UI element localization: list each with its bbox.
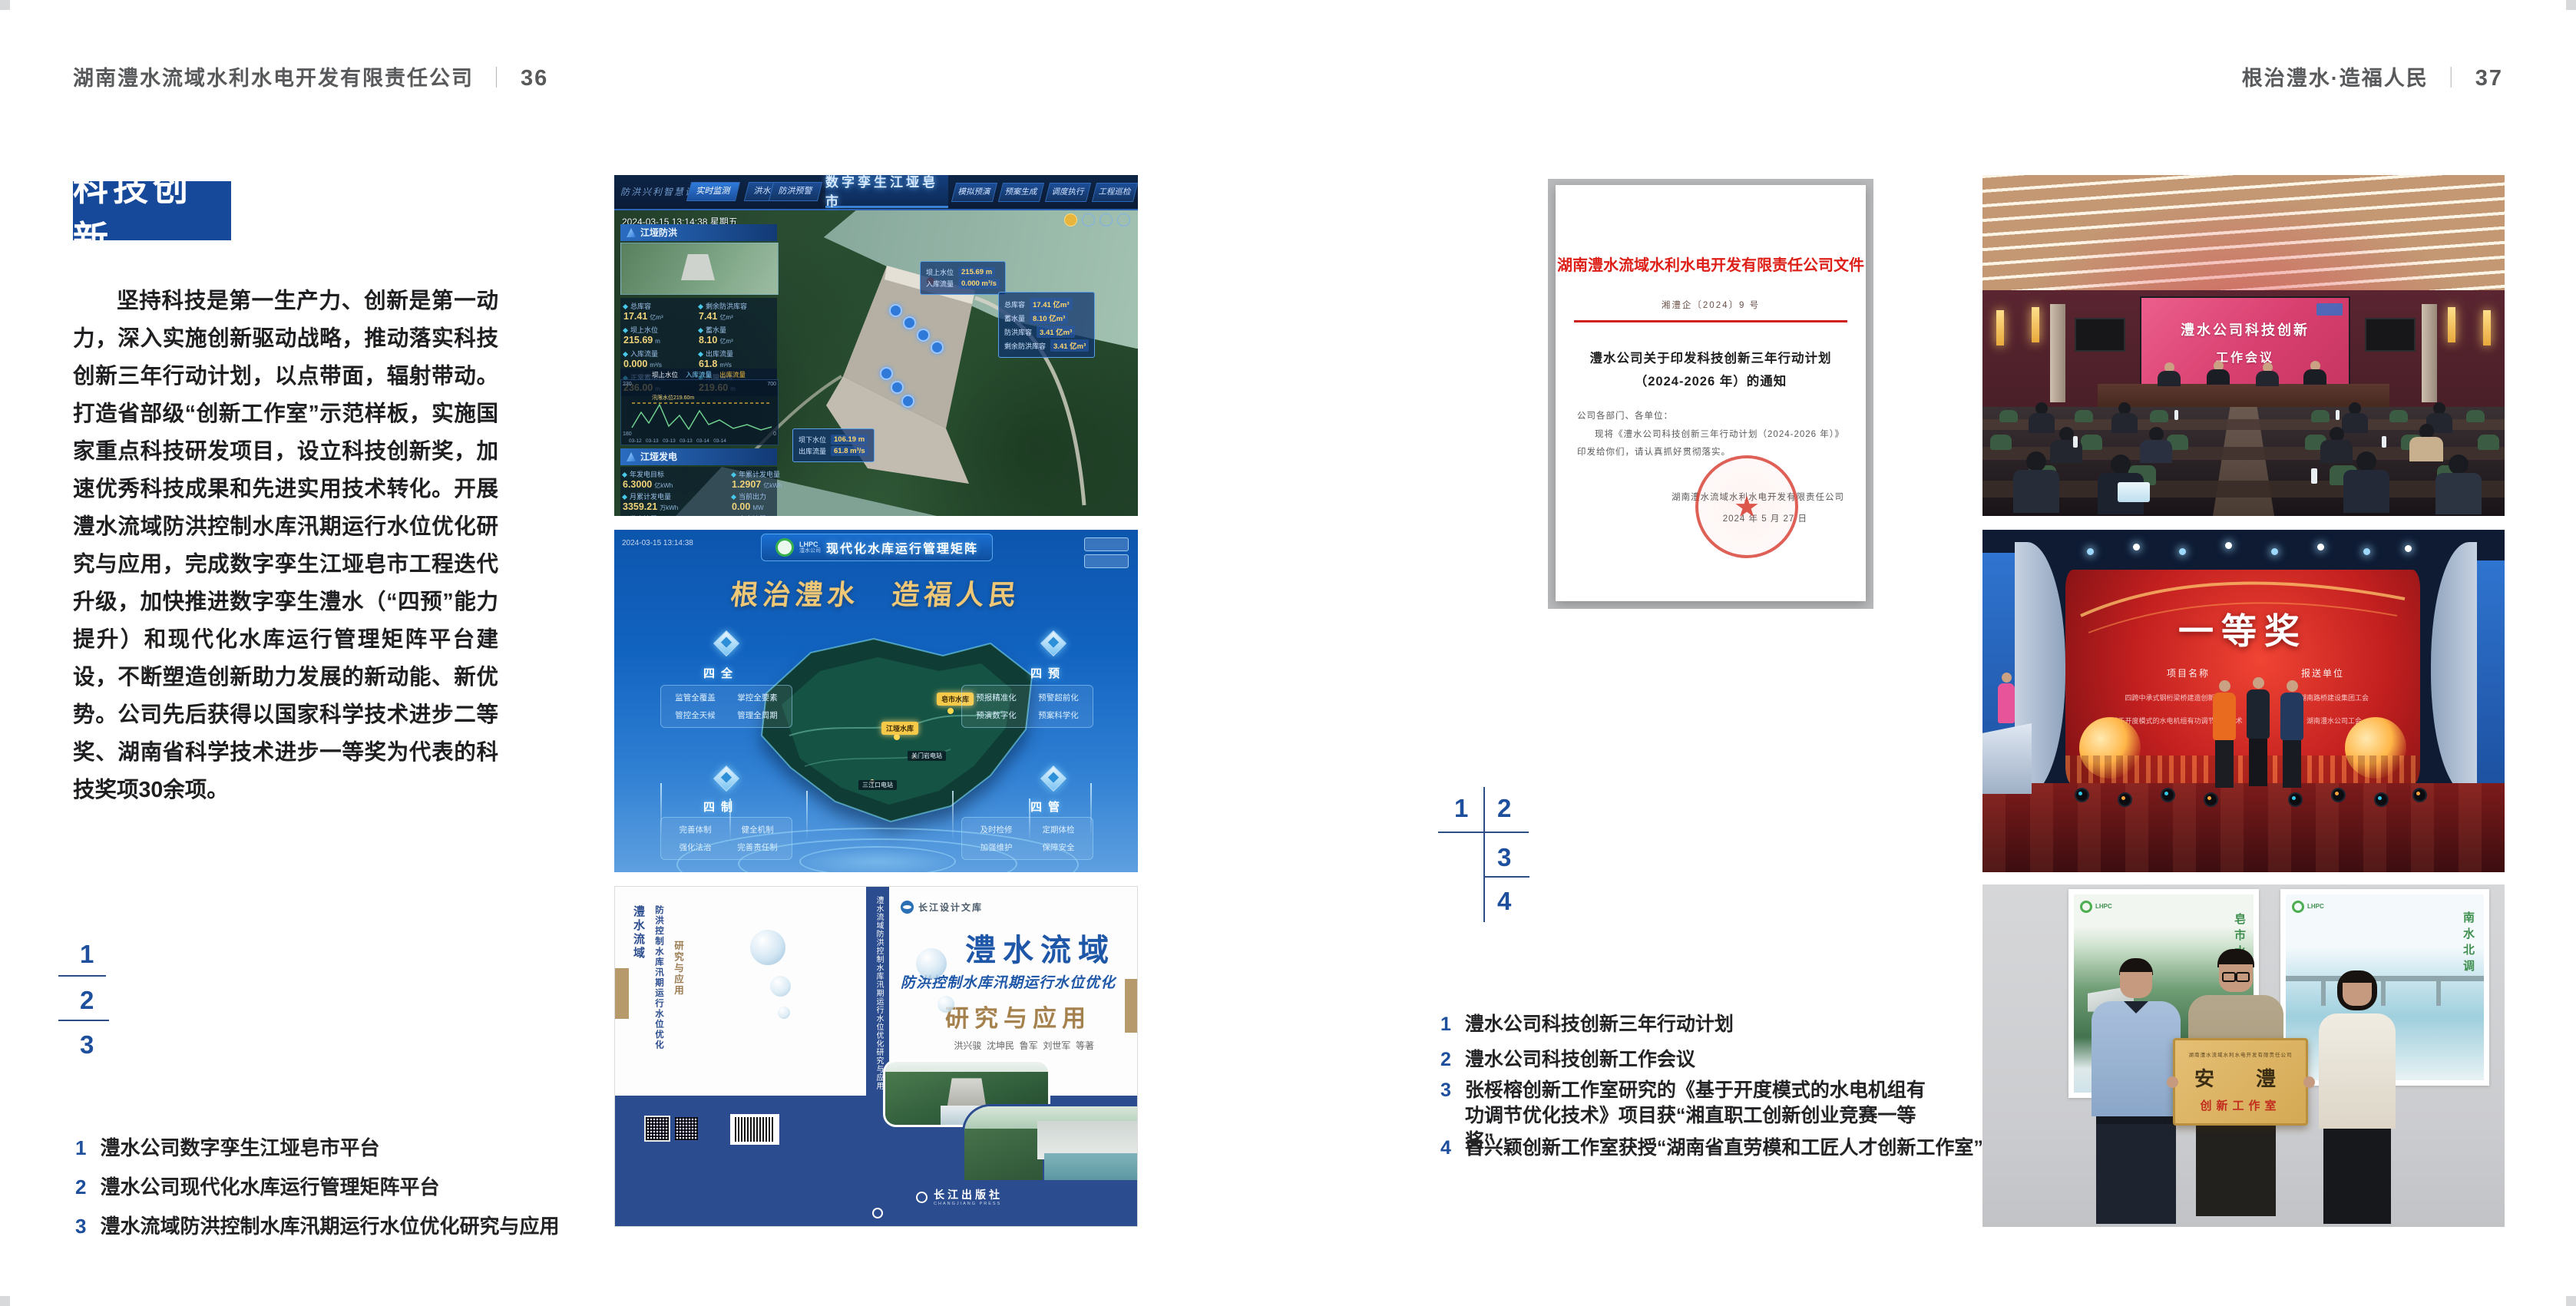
front-accent-block bbox=[1125, 979, 1137, 1033]
stat-value: 17.41 bbox=[623, 311, 647, 322]
tooltip-upstream: 坝上水位215.69 m 入库流量0.000 m³/s bbox=[920, 261, 1006, 295]
tooltip-label: 入库流量 bbox=[926, 279, 954, 289]
water-bottle bbox=[2311, 468, 2317, 484]
caption-text: 澧水公司科技创新工作会议 bbox=[1465, 1047, 1695, 1073]
screen-logo bbox=[2316, 303, 2343, 316]
book-spine: 澧水流域防洪控制水库汛期运行水位优化研究与应用 bbox=[866, 887, 889, 1226]
spotlight-icon bbox=[2133, 544, 2140, 551]
tooltip-label: 剩余防洪库容 bbox=[1004, 341, 1046, 351]
company-logo-icon bbox=[2080, 901, 2092, 913]
section-title-badge: 科技创新 bbox=[73, 181, 231, 240]
figure-marker: 2 bbox=[1497, 794, 1511, 823]
awardee-orange bbox=[2213, 680, 2236, 788]
crop-mark bbox=[0, 1296, 10, 1306]
chair-back bbox=[2311, 410, 2330, 422]
brand-slogan: 根治澧水 造福人民 bbox=[614, 573, 1138, 613]
figure-marker: 3 bbox=[80, 1030, 94, 1060]
tab-simulation: 模拟预演 bbox=[951, 183, 997, 202]
document-letterhead: 湖南澧水流域水利水电开发有限责任公司文件 bbox=[1556, 253, 1866, 275]
water-droplet bbox=[778, 1007, 790, 1019]
stat-unit: m³/s bbox=[650, 362, 662, 369]
figure-award-stage-photo: 一等奖 项目名称 报送单位 四跨中承式钢桁梁桥建造创新技术 基于开度模式的水电机… bbox=[1982, 530, 2505, 872]
award-title: 一等奖 bbox=[2065, 603, 2420, 654]
screen-title-line1: 澧水公司科技创新 bbox=[2181, 319, 2310, 339]
document-salutation: 公司各部门、各单位： bbox=[1577, 409, 1673, 422]
poster-bridge-pier bbox=[2436, 980, 2441, 1006]
innovation-plaque: 湖南澧水流域水利水电开发有限责任公司 安 澧 创新工作室 bbox=[2173, 1038, 2308, 1126]
tab-plan-generation: 预案生成 bbox=[998, 183, 1044, 202]
panel-item: 预警超前化 bbox=[1029, 692, 1088, 703]
water-bottle bbox=[2336, 410, 2340, 420]
y-axis-max: 230 bbox=[623, 382, 632, 387]
basin-map bbox=[720, 620, 1043, 851]
station-marker: 三江口电站 bbox=[858, 780, 897, 790]
project-item: 四跨中承式钢桁梁桥建造创新技术 bbox=[2088, 693, 2265, 703]
barcode bbox=[730, 1114, 779, 1145]
legend-item: 出库流量 bbox=[719, 370, 746, 379]
caption-number: 1 bbox=[1440, 1012, 1451, 1037]
water-droplet bbox=[937, 996, 954, 1013]
skyline-silhouette bbox=[2065, 755, 2420, 785]
caption-number: 4 bbox=[1440, 1136, 1451, 1161]
poster-logo-text: LHPC bbox=[2095, 903, 2112, 910]
ceiling bbox=[1982, 175, 2505, 306]
spotlight-icon bbox=[2271, 548, 2278, 555]
header-divider: ｜ bbox=[2429, 67, 2475, 90]
stat-unit: MW bbox=[752, 504, 763, 511]
water-droplet bbox=[770, 976, 791, 997]
tooltip-value: 106.19 m bbox=[831, 435, 868, 445]
qr-code bbox=[646, 1117, 669, 1140]
water-droplet bbox=[750, 930, 785, 965]
series-name: 长江设计文库 bbox=[918, 901, 983, 914]
spotlight-icon bbox=[2087, 548, 2094, 555]
tooltip-capacity: 总库容17.41 亿m³ 蓄水量8.10 亿m³ 防洪库容3.41 亿m³ 剩余… bbox=[998, 292, 1095, 358]
spotlight-icon bbox=[2405, 545, 2412, 552]
water-bottle bbox=[2073, 436, 2078, 448]
letterhead-rule bbox=[1574, 320, 1847, 322]
document-sheet: 湖南澧水流域水利水电开发有限责任公司文件 湘澧企〔2024〕9 号 澧水公司关于… bbox=[1556, 185, 1866, 601]
stage-light-fixture bbox=[2075, 788, 2089, 802]
body-paragraph: 坚持科技是第一生产力、创新是第一动力，深入实施创新驱动战略，推动落实科技创新三年… bbox=[73, 283, 498, 809]
tooltip-label: 坝上水位 bbox=[926, 267, 954, 277]
stat-unit: 万kWh bbox=[660, 504, 678, 511]
stat-unit: 亿m³ bbox=[719, 338, 732, 345]
wall-lamp bbox=[2032, 307, 2039, 342]
panel-item: 预案科学化 bbox=[1029, 709, 1088, 721]
tooltip-value: 0.000 m³/s bbox=[958, 279, 1000, 289]
person-right bbox=[2319, 970, 2396, 1224]
logo-abbr: LHPC bbox=[799, 541, 821, 548]
side-screen-right bbox=[2474, 560, 2505, 798]
water-droplet bbox=[916, 948, 947, 979]
hand bbox=[2303, 1076, 2315, 1088]
page-header-left: 湖南澧水流域水利水电开发有限责任公司｜36 bbox=[73, 61, 548, 91]
desk-row bbox=[1982, 481, 2505, 498]
presenter-suit bbox=[2247, 677, 2270, 786]
wall-lamp bbox=[2483, 310, 2491, 346]
wall-pillar bbox=[2050, 304, 2065, 402]
back-title-block: 澧水流域 防洪控制水库汛期运行水位优化 研究与应用 bbox=[630, 905, 686, 1050]
y2-axis-max: 700 bbox=[767, 382, 776, 387]
figure-meeting-photo: 澧水公司科技创新 工作会议 bbox=[1982, 175, 2505, 516]
matrix-title: 现代化水库运行管理矩阵 bbox=[826, 538, 978, 557]
caption-item: 1澧水公司数字孪生江垭皂市平台 bbox=[75, 1135, 379, 1161]
plaque-label: 创新工作室 bbox=[2200, 1097, 2280, 1113]
figure-book-cover: 澧水流域 防洪控制水库汛期运行水位优化 研究与应用 澧水流域防洪控制水库汛期运行… bbox=[614, 886, 1138, 1227]
host-figure bbox=[1998, 673, 2015, 723]
settings-icon bbox=[1117, 213, 1130, 226]
poster-logo-text: LHPC bbox=[2307, 903, 2324, 910]
light-pillar bbox=[660, 783, 662, 837]
panel-header-flood: 江垭防洪 bbox=[620, 224, 777, 241]
marker-divider bbox=[58, 975, 106, 977]
book-spread: 湖南澧水流域水利水电开发有限责任公司｜36 根治澧水·造福人民｜37 科技创新 … bbox=[0, 0, 2576, 1306]
host-podium bbox=[1982, 723, 2032, 794]
book-title2: 研究与应用 bbox=[945, 999, 1091, 1033]
hud-icon-cluster bbox=[1060, 213, 1130, 230]
y-axis-min: 180 bbox=[623, 431, 632, 437]
company-logo-icon bbox=[775, 538, 794, 557]
wall-pillar bbox=[2422, 304, 2437, 402]
stat-label: 月累计发电量 bbox=[623, 491, 698, 501]
stage-light-fixture bbox=[2161, 788, 2175, 802]
locate-icon bbox=[1100, 213, 1113, 226]
chart-lines bbox=[621, 380, 778, 445]
wall-lamp bbox=[2448, 307, 2455, 342]
flag-icon bbox=[1040, 630, 1066, 656]
stat-unit: 亿kWh bbox=[654, 482, 673, 489]
panel-items: 监管全覆盖掌控全要素 管控全天候管理全周期 bbox=[660, 685, 792, 728]
stat-value: 0.000 bbox=[623, 359, 647, 369]
light-pillar bbox=[806, 791, 808, 841]
page-header-right: 根治澧水·造福人民｜37 bbox=[2242, 61, 2503, 91]
tooltip-value: 3.41 亿m³ bbox=[1037, 326, 1075, 338]
platform-title: 数字孪生江垭皂市 bbox=[825, 175, 948, 208]
back-accent-block bbox=[615, 968, 629, 1019]
back-title: 澧水流域 bbox=[630, 905, 646, 1050]
panel-item: 预演数字化 bbox=[967, 709, 1026, 721]
company-name: 湖南澧水流域水利水电开发有限责任公司 bbox=[73, 67, 474, 90]
stat-value: 7.41 bbox=[699, 311, 717, 322]
chair-back bbox=[2466, 410, 2485, 422]
tooltip-label: 蓄水量 bbox=[1004, 313, 1025, 323]
chart-annotation: 汛限水位219.60m bbox=[652, 394, 694, 402]
figure-marker: 4 bbox=[1497, 887, 1511, 916]
matrix-header: LHPC 澧水公司 现代化水库运行管理矩阵 bbox=[761, 534, 993, 561]
tooltip-label: 坝下水位 bbox=[799, 435, 826, 445]
gate-marker-icon bbox=[931, 341, 944, 354]
awardee-navy bbox=[2280, 680, 2303, 788]
stat-unit: 亿m³ bbox=[719, 314, 732, 321]
tab-dispatch-execution: 调度执行 bbox=[1045, 183, 1091, 202]
stat-value: 6.3000 bbox=[623, 479, 652, 490]
stage-light-fixture bbox=[2204, 792, 2218, 807]
menu-button bbox=[1084, 554, 1129, 568]
gate-marker-icon bbox=[891, 381, 904, 394]
stat-unit: m³/s bbox=[719, 362, 732, 369]
column-header: 项目名称 bbox=[2119, 666, 2257, 679]
marker-divider bbox=[1483, 876, 1529, 878]
halo-ring bbox=[799, 846, 956, 872]
official-seal: ★ bbox=[1695, 455, 1798, 558]
caption-number: 3 bbox=[1440, 1078, 1451, 1103]
stage-light-fixture bbox=[2374, 792, 2389, 807]
tooltip-value: 215.69 m bbox=[958, 267, 995, 277]
logo-subtitle: 澧水公司 bbox=[799, 548, 821, 554]
y2-axis-min: 0 bbox=[773, 431, 776, 437]
reservoir-marker: 江垭水库 bbox=[881, 722, 918, 735]
figure-official-document: 湖南澧水流域水利水电开发有限责任公司文件 湘澧企〔2024〕9 号 澧水公司关于… bbox=[1548, 179, 1873, 609]
tooltip-value: 3.41 亿m³ bbox=[1050, 339, 1089, 352]
shield-icon bbox=[1040, 765, 1066, 792]
caption-text: 澧水公司现代化水库运行管理矩阵平台 bbox=[100, 1174, 439, 1200]
gate-marker-icon bbox=[917, 329, 930, 342]
stage-structure-right bbox=[2431, 542, 2477, 795]
chair-back bbox=[2478, 435, 2499, 450]
stat-value: 1.2907 bbox=[732, 479, 761, 490]
tooltip-downstream: 坝下水位106.19 m 出库流量61.8 m³/s bbox=[792, 428, 875, 462]
stat-unit: 亿kWh bbox=[763, 482, 782, 489]
station-marker: 关门岩电站 bbox=[908, 751, 946, 761]
caption-text: 澧水流域防洪控制水库汛期运行水位优化研究与应用 bbox=[100, 1213, 559, 1239]
gate-marker-icon bbox=[889, 304, 902, 317]
caption-number: 3 bbox=[75, 1213, 86, 1239]
tissue-box bbox=[2118, 482, 2150, 502]
light-pillar bbox=[1029, 798, 1030, 841]
crop-mark bbox=[2566, 0, 2576, 10]
chair-back bbox=[1999, 410, 2018, 422]
hand bbox=[2167, 1076, 2178, 1088]
figure-plaque-photo: LHPC 皂市水库 LHPC 南水北调 bbox=[1982, 884, 2505, 1227]
chair-back bbox=[2389, 410, 2408, 422]
figure-digital-twin-platform: 数字孪生江垭皂市 防洪兴利智慧调度 实时监测 洪水预报 防洪预警 模拟预演 预案… bbox=[614, 175, 1138, 516]
tab-project-inspection: 工程巡检 bbox=[1092, 183, 1138, 202]
book-authors: 洪兴骏 沈坤民 鲁军 刘世军 等著 bbox=[954, 1039, 1094, 1052]
stat-label: 蓄水量 bbox=[699, 325, 774, 335]
stage-light-fixture bbox=[2331, 788, 2346, 802]
poster-calligraphy: 南水北调 bbox=[2460, 911, 2476, 976]
panel-title: 四预 bbox=[1030, 665, 1066, 681]
back-subtitle: 防洪控制水库汛期运行水位优化 bbox=[653, 905, 665, 1050]
stat-label: 入库流量 bbox=[623, 349, 699, 359]
stage-light-fixture bbox=[2412, 788, 2427, 802]
stat-label: 坝上水位 bbox=[623, 325, 699, 335]
caption-text: 澧水公司科技创新三年行动计划 bbox=[1465, 1012, 1734, 1037]
stat-label: 剩余防洪库容 bbox=[699, 301, 774, 311]
wall-tv bbox=[2075, 318, 2125, 352]
chair-back bbox=[2150, 410, 2168, 422]
gate-marker-icon bbox=[880, 367, 893, 380]
stage-light-fixture bbox=[2118, 792, 2132, 807]
stat-value: 8.10 bbox=[699, 335, 717, 346]
chair-back bbox=[1990, 435, 2012, 450]
crop-mark bbox=[2566, 1296, 2576, 1306]
stat-label: 总库容 bbox=[623, 301, 699, 311]
stat-label: 发电流量 bbox=[623, 514, 698, 516]
level-chart: 230 180 700 0 汛限水位219.60m 03-12 03-13 03… bbox=[620, 379, 779, 445]
header-divider: ｜ bbox=[474, 67, 521, 90]
stage-light-fixture bbox=[2288, 792, 2303, 807]
crop-mark bbox=[0, 0, 10, 10]
tab-flood-warning: 防洪预警 bbox=[769, 182, 822, 201]
document-body: 现将《澧水公司科技创新三年行动计划（2024-2026 年）》印发给你们，请认真… bbox=[1577, 426, 1844, 461]
plaque-org-line: 湖南澧水流域水利水电开发有限责任公司 bbox=[2189, 1050, 2293, 1058]
figure-matrix-platform: LHPC 澧水公司 现代化水库运行管理矩阵 2024-03-15 13:14:3… bbox=[614, 530, 1138, 872]
panel-title: 四制 bbox=[703, 798, 739, 815]
powerhouse-photo bbox=[964, 1106, 1138, 1180]
tooltip-label: 防洪库容 bbox=[1004, 327, 1032, 337]
panel-item: 监管全覆盖 bbox=[666, 692, 725, 703]
layers-icon bbox=[1082, 213, 1095, 226]
caption-item: 2澧水公司现代化水库运行管理矩阵平台 bbox=[75, 1174, 439, 1200]
wall-lamp bbox=[1996, 310, 2004, 346]
x-axis-ticks: 03-12 03-13 03-13 03-13 03-14 03-14 bbox=[629, 438, 726, 444]
panel-items: 预报精准化预警超前化 预演数字化预案科学化 bbox=[961, 685, 1093, 728]
publisher-logo-icon bbox=[872, 1208, 883, 1218]
dam-thumbnail bbox=[620, 243, 779, 295]
caption-item: 1澧水公司科技创新三年行动计划 bbox=[1440, 1012, 1734, 1037]
slogan: 根治澧水·造福人民 bbox=[2242, 67, 2429, 90]
spotlight-icon bbox=[2363, 548, 2370, 555]
matrix-datetime: 2024-03-15 13:14:38 bbox=[622, 539, 693, 547]
caption-item: 4曾兴颖创新工作室获授“湖南省直劳模和工匠人才创新工作室” bbox=[1440, 1136, 1983, 1161]
stat-label: 年发电目标 bbox=[623, 469, 698, 479]
stat-label: 出库流量 bbox=[699, 349, 774, 359]
publisher-latin: CHANGJIANG PRESS bbox=[934, 1202, 1003, 1207]
figure-marker: 1 bbox=[80, 940, 94, 969]
seal-star-icon: ★ bbox=[1734, 490, 1760, 524]
fullscreen-button bbox=[1084, 537, 1129, 551]
chair-back bbox=[2081, 435, 2102, 450]
stat-label: 年累计发电量 bbox=[732, 469, 807, 479]
light-pillar bbox=[1090, 783, 1092, 837]
figure-marker: 1 bbox=[1454, 794, 1468, 823]
caption-number: 1 bbox=[75, 1135, 86, 1161]
qr-code bbox=[675, 1117, 698, 1140]
back-title2: 研究与应用 bbox=[671, 941, 686, 1050]
spotlight-icon bbox=[2225, 542, 2232, 549]
publisher-name: 长江出版社 bbox=[934, 1188, 1003, 1202]
series-logo-row: 长江设计文库 bbox=[901, 901, 983, 914]
spotlight-icon bbox=[2317, 544, 2324, 551]
spine-title: 澧水流域防洪控制水库汛期运行水位优化研究与应用 bbox=[873, 896, 885, 1090]
legend-item: 入库流量 bbox=[686, 370, 712, 379]
tab-realtime-monitoring: 实时监测 bbox=[686, 182, 740, 201]
gate-marker-icon bbox=[901, 395, 914, 408]
caption-number: 2 bbox=[1440, 1047, 1451, 1073]
document-number: 湘澧企〔2024〕9 号 bbox=[1556, 299, 1866, 311]
caption-item: 3澧水流域防洪控制水库汛期运行水位优化研究与应用 bbox=[75, 1213, 559, 1239]
caption-item: 2澧水公司科技创新工作会议 bbox=[1440, 1047, 1695, 1073]
tooltip-value: 17.41 亿m³ bbox=[1030, 298, 1073, 310]
company-logo-icon bbox=[2292, 901, 2304, 913]
stat-value: 0.00 bbox=[732, 501, 750, 512]
caption-number: 2 bbox=[75, 1174, 86, 1200]
figure-marker: 3 bbox=[1497, 843, 1511, 872]
caption-text: 曾兴颖创新工作室获授“湖南省直劳模和工匠人才创新工作室” bbox=[1465, 1136, 1983, 1161]
chair-back bbox=[2075, 410, 2093, 422]
document-title-line1: 澧水公司关于印发科技创新三年行动计划 bbox=[1556, 348, 1866, 366]
marker-divider-vertical bbox=[1483, 787, 1485, 922]
panel-item: 定期体检 bbox=[1029, 824, 1088, 835]
tooltip-label: 出库流量 bbox=[799, 446, 826, 456]
stat-unit: m bbox=[655, 338, 660, 345]
led-screen: 一等奖 项目名称 报送单位 四跨中承式钢桁梁桥建造创新技术 基于开度模式的水电机… bbox=[2065, 570, 2420, 785]
water-bottle bbox=[2382, 436, 2386, 448]
stat-label: 弃水流量 bbox=[732, 514, 807, 516]
stat-label: 当前出力 bbox=[732, 491, 807, 501]
spotlight-icon bbox=[2179, 548, 2186, 555]
panel-item: 管理全周期 bbox=[728, 709, 787, 721]
stat-value: 61.8 bbox=[699, 359, 717, 369]
wall-tv bbox=[2365, 318, 2416, 352]
tooltip-label: 总库容 bbox=[1004, 299, 1025, 309]
document-title-line2: （2024-2026 年）的通知 bbox=[1556, 371, 1866, 389]
panel-item: 掌控全要素 bbox=[728, 692, 787, 703]
panel-item: 管控全天候 bbox=[666, 709, 725, 721]
light-pillar bbox=[952, 791, 954, 841]
marker-divider bbox=[58, 1020, 109, 1021]
person-left bbox=[2092, 958, 2181, 1224]
power-stats-grid: 年发电目标6.3000亿kWh 年累计发电量1.2907亿kWh 月累计发电量3… bbox=[620, 467, 777, 516]
light-pillar bbox=[729, 798, 731, 841]
gate-marker-icon bbox=[903, 316, 916, 329]
stat-value: 3359.21 bbox=[623, 501, 657, 512]
user-icon bbox=[1064, 213, 1077, 226]
panel-item: 预报精准化 bbox=[967, 692, 1026, 703]
panel-header-power: 江垭发电 bbox=[620, 448, 777, 465]
page-number-left: 36 bbox=[521, 66, 548, 91]
page-number-right: 37 bbox=[2475, 66, 2503, 91]
stat-unit: 亿m³ bbox=[650, 314, 663, 321]
caption-text: 澧水公司数字孪生江垭皂市平台 bbox=[100, 1135, 379, 1161]
panel-item: 完善体制 bbox=[666, 824, 725, 835]
panel-title: 四管 bbox=[1030, 798, 1066, 815]
column-header: 报送单位 bbox=[2257, 666, 2388, 679]
book-title: 澧水流域 bbox=[965, 925, 1116, 970]
water-bottle bbox=[2174, 410, 2178, 420]
plaque-calligraphy: 安 澧 bbox=[2194, 1063, 2287, 1092]
publisher-row: 长江出版社 CHANGJIANG PRESS bbox=[916, 1188, 1003, 1207]
legend-item: 坝上水位 bbox=[652, 370, 678, 379]
tooltip-value: 8.10 亿m³ bbox=[1030, 312, 1068, 324]
tooltip-value: 61.8 m³/s bbox=[831, 446, 868, 456]
stat-value: 215.69 bbox=[623, 335, 653, 346]
panel-title: 四全 bbox=[703, 665, 739, 681]
dam-thumb-shape bbox=[681, 254, 715, 280]
figure-marker: 2 bbox=[80, 986, 94, 1015]
